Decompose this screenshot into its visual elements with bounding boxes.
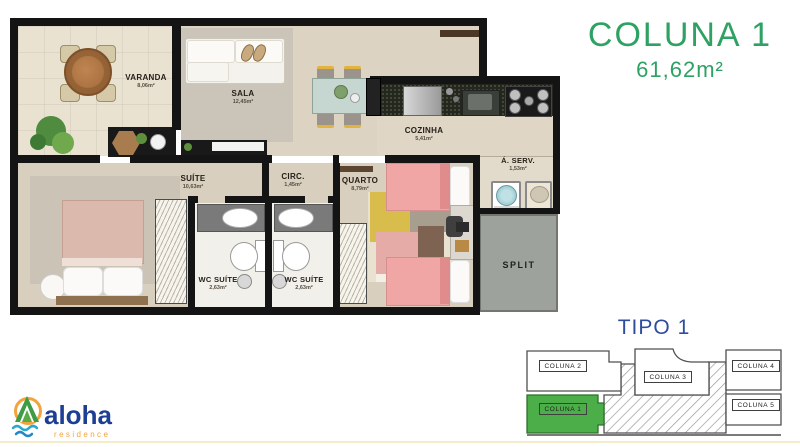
- suite-bed-fold: [62, 258, 142, 266]
- laptop: [456, 222, 469, 232]
- circ-label: CIRC. 1,45m²: [281, 172, 304, 188]
- washer-drum: [496, 185, 517, 206]
- wall: [188, 196, 195, 307]
- dining-chair: [317, 113, 334, 128]
- single-bed-fold: [440, 257, 449, 304]
- brand-subtitle: residence: [54, 430, 110, 439]
- sideboard-plant: [184, 143, 192, 151]
- dining-plate: [350, 93, 360, 103]
- suite-pillow: [103, 267, 143, 296]
- wall-shelf: [440, 30, 482, 37]
- wave-icon: [16, 432, 32, 436]
- suite-wardrobe: [155, 199, 187, 304]
- wall: [130, 155, 272, 163]
- bar-plate: [150, 134, 166, 150]
- plant: [52, 132, 74, 154]
- wall: [370, 76, 560, 84]
- round-table: [64, 48, 112, 96]
- kitchen-knob: [446, 88, 453, 95]
- wc-suite-2-label: WC SUÍTE 2,63m²: [284, 275, 323, 291]
- wall: [385, 155, 480, 163]
- toilet: [282, 242, 310, 271]
- wall: [10, 307, 480, 315]
- suite-label: SUÍTE 10,63m²: [180, 174, 205, 190]
- keyplan-diagram: COLUNA 2 COLUNA 1 COLUNA 3 COLUNA 4 COLU…: [523, 347, 785, 438]
- wc-suite-1-label: WC SUÍTE 2,63m²: [198, 275, 237, 291]
- brand-name: aloha: [44, 400, 112, 431]
- aloha-logo-icon: [10, 395, 44, 441]
- tank-basin: [530, 186, 549, 203]
- wall: [172, 18, 181, 130]
- unit-area: 61,62m²: [560, 57, 800, 83]
- tipo-unit-coluna-5: COLUNA 5: [732, 399, 780, 411]
- wall: [473, 163, 480, 315]
- wall: [333, 163, 340, 315]
- sideboard-shelf: [212, 142, 264, 151]
- wall: [272, 196, 305, 203]
- dining-plate: [334, 85, 348, 99]
- quarto-wardrobe: [337, 223, 367, 304]
- sala-label: SALA 12,45m²: [232, 89, 255, 105]
- stove-burner: [509, 89, 521, 101]
- sofa-chaise: [187, 62, 229, 82]
- quarto-label: QUARTO 8,79m²: [342, 176, 378, 192]
- kitchen-knob: [453, 96, 459, 102]
- bar-plant: [136, 133, 147, 144]
- fridge: [403, 86, 442, 116]
- tipo-section: TIPO 1 COLUNA 2 COLUNA 1 COLUNA 3: [523, 316, 785, 442]
- single-bed-pillow: [450, 260, 470, 303]
- suite-bed-blanket: [62, 200, 144, 264]
- wall: [479, 208, 558, 214]
- kitchen-sink-basin: [468, 94, 492, 110]
- wall: [10, 18, 487, 26]
- single-bed-pillow: [450, 166, 470, 208]
- shower-icon: [237, 274, 252, 289]
- dining-chair: [344, 113, 361, 128]
- stove-burner: [537, 102, 549, 114]
- tv-rack: [366, 78, 381, 116]
- tipo-unit-coluna-1: COLUNA 1: [539, 403, 587, 415]
- sofa-cushion: [187, 40, 235, 63]
- page: VARANDA 8,06m² SALA 12,45m² COZINHA 5,41…: [0, 0, 800, 447]
- page-title: COLUNA 1: [560, 16, 800, 55]
- split-label: SPLIT: [502, 260, 535, 270]
- wall: [553, 84, 560, 214]
- tipo-unit-coluna-3: COLUNA 3: [644, 371, 692, 383]
- toilet: [230, 242, 258, 271]
- wall: [10, 18, 18, 315]
- headboard: [56, 296, 148, 305]
- unit-header: COLUNA 1 61,62m²: [560, 16, 800, 83]
- plant: [30, 134, 46, 150]
- wall: [265, 196, 272, 307]
- wall: [188, 196, 198, 203]
- stove-burner: [509, 102, 521, 114]
- wall: [10, 155, 100, 163]
- vanity-sink: [222, 208, 258, 228]
- vanity-sink: [278, 208, 314, 228]
- tipo-unit-coluna-4: COLUNA 4: [732, 360, 780, 372]
- desk-papers: [455, 240, 469, 252]
- cozinha-label: COZINHA 5,41m²: [405, 126, 444, 142]
- tipo-title: TIPO 1: [523, 316, 785, 340]
- single-bed-fold: [440, 163, 449, 209]
- suite-pillow: [63, 267, 103, 296]
- wave-icon: [13, 426, 37, 430]
- varanda-label: VARANDA 8,06m²: [125, 73, 167, 89]
- area-servico-label: Á. SERV. 1,53m²: [501, 156, 535, 172]
- tipo-unit-coluna-2: COLUNA 2: [539, 360, 587, 372]
- wall: [225, 196, 265, 203]
- stove-burner: [524, 96, 534, 106]
- wall: [333, 155, 339, 163]
- stove-burner: [537, 89, 549, 101]
- quarto-shelf: [338, 166, 373, 172]
- brand-logo: aloha residence: [8, 393, 178, 445]
- wall: [479, 18, 487, 84]
